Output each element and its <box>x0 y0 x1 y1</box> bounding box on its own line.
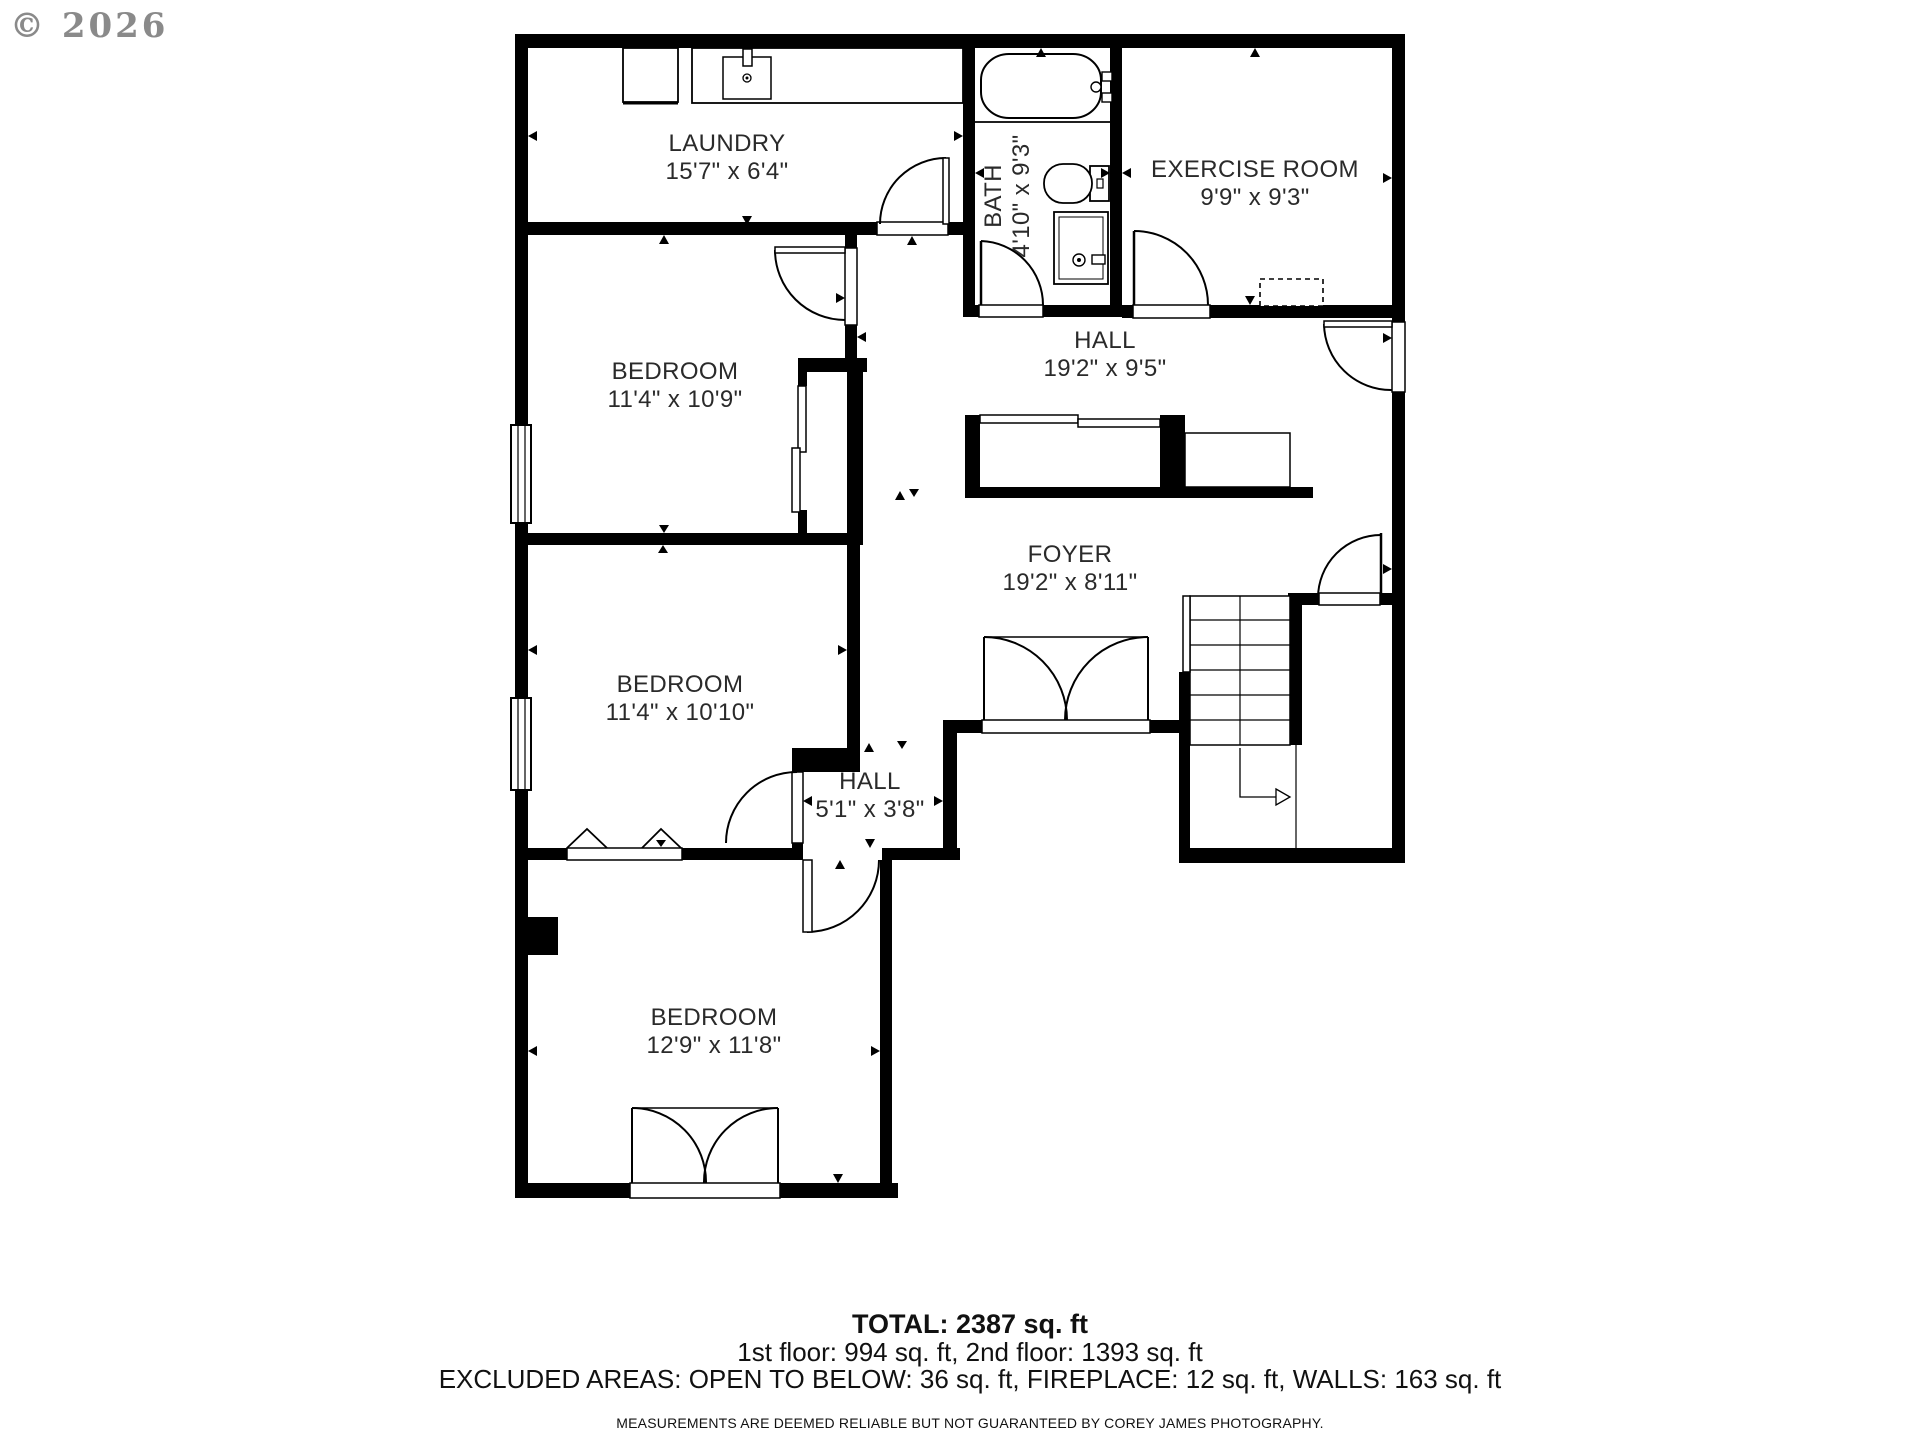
wall-bath-bottom-1 <box>963 305 979 317</box>
wall-left-2 <box>515 523 528 698</box>
wall-bed3-bottom-1 <box>515 1183 630 1198</box>
wall-closet-jamb-2 <box>798 510 807 533</box>
door-bedroom1 <box>775 247 845 320</box>
room-label-bedroom-3: BEDROOM 12'9" x 11'8" <box>646 1004 781 1060</box>
threshold-bedroom2 <box>792 772 803 843</box>
room-label-foyer: FOYER 19'2" x 8'11" <box>1002 541 1137 597</box>
hearth <box>1185 433 1290 487</box>
window-icon-bedroom1 <box>511 425 531 523</box>
wall-fireplace-bottom <box>965 487 1313 498</box>
wall-top <box>515 34 1405 48</box>
wall-foyer-south-1 <box>943 720 982 733</box>
toilet-icon <box>1044 164 1109 203</box>
threshold-bedroom1 <box>845 248 857 325</box>
summary-floors: 1st floor: 994 sq. ft, 2nd floor: 1393 s… <box>439 1339 1502 1365</box>
threshold-closet-bifold <box>567 848 682 860</box>
room-label-exercise-room: EXERCISE ROOM 9'9" x 9'3" <box>1151 156 1359 212</box>
wall-bed-divider <box>515 533 863 545</box>
room-name: FOYER <box>1002 541 1137 569</box>
wall-laundry-bottom <box>515 222 877 235</box>
wall-foyer-south-2 <box>1150 720 1180 733</box>
door-bedroom3 <box>803 860 879 932</box>
wall-bed2-right <box>847 545 860 750</box>
door-hall-right <box>1324 321 1392 390</box>
watermark: © 2026 <box>10 6 168 46</box>
room-name: EXERCISE ROOM <box>1151 156 1359 184</box>
wall-bed3-step <box>528 917 558 955</box>
laundry-sink-icon <box>723 49 771 99</box>
room-dims: 12'9" x 11'8" <box>646 1032 781 1060</box>
threshold-bath <box>979 305 1043 317</box>
wall-bed3-right <box>880 860 892 1198</box>
door-exercise <box>1134 231 1208 305</box>
wall-bath-right <box>1110 48 1122 317</box>
room-label-bedroom-1: BEDROOM 11'4" x 10'9" <box>607 358 742 414</box>
threshold-hall-right <box>1392 322 1405 392</box>
threshold-bedroom3-entry <box>630 1183 780 1198</box>
stair-railing <box>1183 596 1190 672</box>
wall-stair-left <box>1179 672 1190 863</box>
summary-total: TOTAL: 2387 sq. ft <box>439 1311 1502 1338</box>
wall-stair-top-1 <box>1288 593 1319 605</box>
wall-stair-bottom <box>1179 848 1405 863</box>
wall-bed3-bottom-2 <box>780 1183 898 1198</box>
room-name: BEDROOM <box>646 1004 781 1032</box>
wall-hall-right <box>943 720 957 860</box>
door-stairwell <box>1318 533 1381 598</box>
wall-bed2-bottom-2 <box>682 848 803 860</box>
room-dims: 11'4" x 10'10" <box>606 699 755 727</box>
summary-disclaimer: MEASUREMENTS ARE DEEMED RELIABLE BUT NOT… <box>439 1416 1502 1430</box>
wall-closet-right <box>847 358 863 545</box>
door-bedroom2 <box>726 772 797 843</box>
room-dims: 19'2" x 8'11" <box>1002 569 1137 597</box>
floorplan-page: © 2026 LAUNDRY 15'7" x 6'4" BATH 4'10" x… <box>0 0 1920 1440</box>
wall-bed1-right-2 <box>845 325 857 358</box>
summary-excluded: EXCLUDED AREAS: OPEN TO BELOW: 36 sq. ft… <box>439 1366 1502 1392</box>
room-label-hall-upper: HALL 19'2" x 9'5" <box>1043 327 1166 383</box>
bifold-door-closet <box>567 829 681 848</box>
wall-exercise-bottom-2 <box>1210 305 1405 318</box>
room-label-bath: BATH 4'10" x 9'3" <box>980 134 1036 257</box>
wall-exercise-bottom-1 <box>1122 305 1133 318</box>
threshold-laundry <box>877 222 948 235</box>
wall-bed2-bottom-1 <box>515 848 567 860</box>
washer-icon <box>623 48 678 103</box>
room-label-hall-small: HALL 5'1" x 3'8" <box>815 768 924 824</box>
room-dims: 19'2" x 9'5" <box>1043 355 1166 383</box>
wall-stair-right <box>1290 605 1302 745</box>
room-name: LAUNDRY <box>665 130 788 158</box>
summary-block: TOTAL: 2387 sq. ft 1st floor: 994 sq. ft… <box>439 1311 1502 1430</box>
threshold-exercise <box>1133 305 1210 318</box>
vanity-sink-icon <box>1054 212 1108 284</box>
fireplace-icon <box>980 415 1290 487</box>
stairs <box>1183 596 1296 848</box>
room-name: BEDROOM <box>606 671 755 699</box>
floorplan-drawing <box>0 0 1920 1440</box>
wall-bath-left <box>963 48 975 305</box>
room-dims: 9'9" x 9'3" <box>1151 184 1359 212</box>
door-laundry <box>880 158 949 224</box>
bedroom3-double-door <box>632 1108 778 1183</box>
bathtub-icon <box>975 54 1112 122</box>
room-dims: 4'10" x 9'3" <box>1008 134 1036 257</box>
room-dims: 11'4" x 10'9" <box>607 386 742 414</box>
wall-right-2 <box>1392 392 1405 863</box>
window-icon-bedroom2 <box>511 698 531 790</box>
wall-closet-jamb-1 <box>798 372 807 386</box>
wall-stair-top-2 <box>1380 593 1403 605</box>
wall-right-1 <box>1392 34 1405 322</box>
room-name: HALL <box>1043 327 1166 355</box>
fireplace-left <box>965 415 980 497</box>
room-dims: 15'7" x 6'4" <box>665 158 788 186</box>
sliding-door-bedroom1 <box>792 386 806 512</box>
room-label-laundry: LAUNDRY 15'7" x 6'4" <box>665 130 788 186</box>
room-label-bedroom-2: BEDROOM 11'4" x 10'10" <box>606 671 755 727</box>
entry-double-door <box>984 637 1148 720</box>
fireplace-right <box>1160 415 1185 497</box>
room-dims: 5'1" x 3'8" <box>815 796 924 824</box>
threshold-foyer-entry <box>982 720 1150 733</box>
wall-bath-bottom-2 <box>1043 305 1122 317</box>
room-name: HALL <box>815 768 924 796</box>
room-name: BATH <box>980 134 1008 257</box>
threshold-stair-door <box>1319 593 1380 605</box>
dashed-equipment-box <box>1260 279 1323 306</box>
room-name: BEDROOM <box>607 358 742 386</box>
wall-bed1-right-1 <box>845 233 857 248</box>
